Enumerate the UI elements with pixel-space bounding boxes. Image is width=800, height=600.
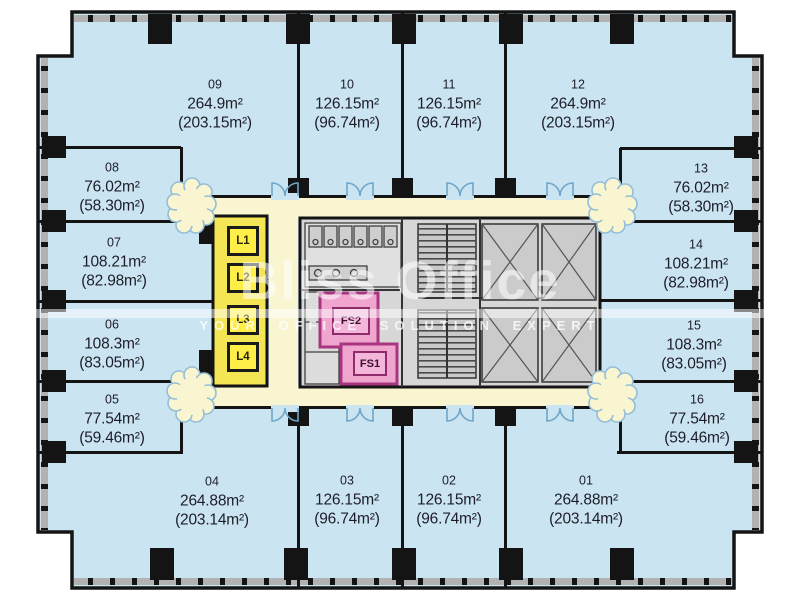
floorplan-page: L1 L2 L3 L4 FS2 FS1 Bliss Office YOUR OF… xyxy=(0,0,800,600)
unit-05: 05 77.54m² (59.46m²) xyxy=(32,391,192,448)
watermark-tagline: YOUR OFFICE SOLUTION EXPERT xyxy=(199,318,600,333)
unit-13: 13 76.02m² (58.30m²) xyxy=(621,160,781,217)
unit-number: 14 xyxy=(616,236,776,255)
unit-area-net: (58.30m²) xyxy=(32,197,192,216)
unit-area-net: (82.98m²) xyxy=(616,274,776,293)
unit-14: 14 108.21m² (82.98m²) xyxy=(616,236,776,293)
unit-number: 07 xyxy=(34,234,194,253)
unit-area: 126.15m² xyxy=(369,491,529,510)
unit-area-net: (82.98m²) xyxy=(34,272,194,291)
unit-02: 02 126.15m² (96.74m²) xyxy=(369,472,529,529)
unit-area-net: (59.46m²) xyxy=(32,429,192,448)
lift-L4: L4 xyxy=(227,342,259,372)
unit-07: 07 108.21m² (82.98m²) xyxy=(34,234,194,291)
unit-01: 01 264.88m² (203.14m²) xyxy=(506,472,666,529)
unit-area-net: (203.14m²) xyxy=(506,510,666,529)
unit-number: 05 xyxy=(32,391,192,410)
unit-06: 06 108.3m² (83.05m²) xyxy=(32,316,192,373)
unit-area-net: (83.05m²) xyxy=(614,355,774,374)
unit-area: 77.54m² xyxy=(32,410,192,429)
watermark-brand: Bliss Office xyxy=(239,250,560,312)
unit-number: 02 xyxy=(369,472,529,491)
unit-area: 77.54m² xyxy=(617,410,777,429)
unit-area-net: (59.46m²) xyxy=(617,429,777,448)
lift-label: L4 xyxy=(236,351,249,363)
unit-area: 76.02m² xyxy=(621,179,781,198)
unit-area: 264.9m² xyxy=(498,95,658,114)
unit-area: 76.02m² xyxy=(32,178,192,197)
unit-area-net: (58.30m²) xyxy=(621,198,781,217)
unit-16: 16 77.54m² (59.46m²) xyxy=(617,391,777,448)
unit-15: 15 108.3m² (83.05m²) xyxy=(614,317,774,374)
unit-area: 108.21m² xyxy=(616,255,776,274)
unit-number: 12 xyxy=(498,76,658,95)
unit-area-net: (96.74m²) xyxy=(369,510,529,529)
unit-area-net: (83.05m²) xyxy=(32,354,192,373)
unit-08: 08 76.02m² (58.30m²) xyxy=(32,159,192,216)
lift-label: L1 xyxy=(236,235,249,247)
unit-number: 08 xyxy=(32,159,192,178)
unit-number: 13 xyxy=(621,160,781,179)
unit-area: 108.3m² xyxy=(614,336,774,355)
fire-stair-FS1: FS1 xyxy=(353,351,387,376)
unit-12: 12 264.9m² (203.15m²) xyxy=(498,76,658,133)
unit-area: 108.3m² xyxy=(32,335,192,354)
unit-number: 01 xyxy=(506,472,666,491)
unit-area: 264.88m² xyxy=(506,491,666,510)
unit-number: 06 xyxy=(32,316,192,335)
unit-number: 15 xyxy=(614,317,774,336)
fire-stair-label: FS1 xyxy=(360,358,380,370)
unit-number: 16 xyxy=(617,391,777,410)
unit-area: 108.21m² xyxy=(34,253,194,272)
unit-area-net: (203.15m²) xyxy=(498,114,658,133)
